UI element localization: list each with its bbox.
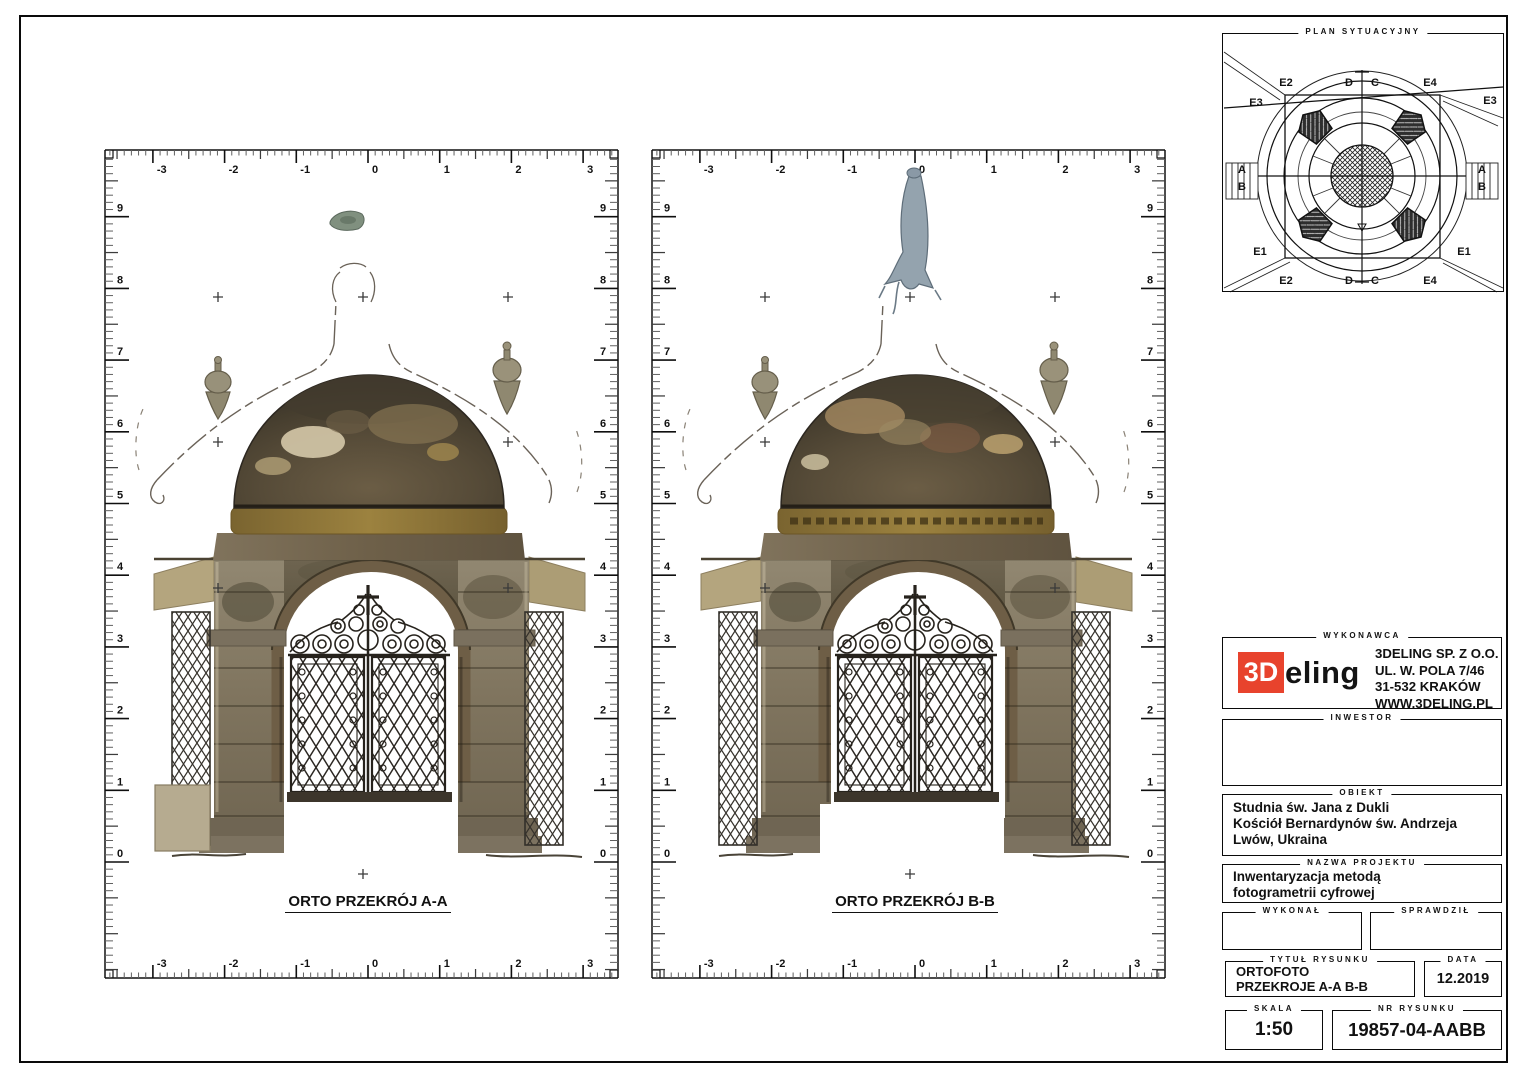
svg-text:1: 1 — [444, 164, 450, 176]
svg-text:3: 3 — [1147, 633, 1153, 645]
svg-text:3: 3 — [664, 633, 670, 645]
svg-text:1: 1 — [600, 776, 606, 788]
svg-text:-3: -3 — [704, 164, 714, 176]
object-text: Studnia św. Jana z Dukli Kościół Bernard… — [1223, 795, 1501, 848]
situational-plan-label: PLAN SYTUACYJNY — [1298, 27, 1427, 36]
svg-text:7: 7 — [600, 346, 606, 358]
svg-text:4: 4 — [664, 561, 671, 573]
svg-text:8: 8 — [1147, 274, 1153, 286]
svg-text:4: 4 — [600, 561, 607, 573]
scale-label: SKALA — [1247, 1004, 1301, 1013]
drawing-number-label: NR RYSUNKU — [1371, 1004, 1463, 1013]
svg-text:-2: -2 — [776, 958, 786, 970]
svg-text:9: 9 — [117, 203, 123, 215]
svg-text:0: 0 — [664, 848, 670, 860]
stone-plinth-left — [155, 785, 210, 851]
svg-text:-1: -1 — [847, 958, 857, 970]
drawing-title-box: TYTUŁ RYSUNKU ORTOFOTO PRZEKROJE A-A B-B — [1225, 961, 1415, 997]
svg-text:5: 5 — [1147, 490, 1153, 502]
orthophoto-section-b — [683, 168, 1132, 879]
date-label: DATA — [1440, 955, 1485, 964]
svg-text:-2: -2 — [229, 958, 239, 970]
project-name-label: NAZWA PROJEKTU — [1300, 858, 1424, 867]
svg-text:7: 7 — [117, 346, 123, 358]
svg-text:3: 3 — [587, 958, 593, 970]
svg-text:2: 2 — [515, 164, 521, 176]
svg-text:6: 6 — [664, 418, 670, 430]
svg-text:8: 8 — [600, 274, 606, 286]
project-name-text: Inwentaryzacja metodą fotogrametrii cyfr… — [1223, 865, 1501, 901]
svg-text:4: 4 — [1147, 561, 1154, 573]
svg-text:5: 5 — [600, 490, 606, 502]
svg-text:5: 5 — [117, 490, 123, 502]
object-label: OBIEKT — [1332, 788, 1391, 797]
svg-text:-2: -2 — [229, 164, 239, 176]
investor-box: INWESTOR — [1222, 719, 1502, 786]
svg-text:-1: -1 — [847, 164, 857, 176]
svg-text:1: 1 — [991, 958, 997, 970]
svg-text:2: 2 — [1147, 705, 1153, 717]
svg-text:5: 5 — [664, 490, 670, 502]
svg-text:1: 1 — [1147, 776, 1153, 788]
svg-text:1: 1 — [117, 776, 123, 788]
object-box: OBIEKT Studnia św. Jana z Dukli Kościół … — [1222, 794, 1502, 856]
situational-plan-box: PLAN SYTUACYJNY — [1222, 33, 1504, 292]
svg-text:7: 7 — [664, 346, 670, 358]
svg-text:3: 3 — [117, 633, 123, 645]
svg-text:0: 0 — [372, 958, 378, 970]
svg-text:-3: -3 — [157, 164, 167, 176]
lantern-outline — [333, 263, 375, 302]
svg-text:-3: -3 — [704, 958, 714, 970]
svg-text:3: 3 — [1134, 958, 1140, 970]
orthophoto-section-a — [136, 211, 585, 879]
checked-by-label: SPRAWDZIŁ — [1394, 906, 1478, 915]
logo-3d-icon: 3D — [1238, 652, 1284, 693]
svg-text:1: 1 — [444, 958, 450, 970]
scale-box: SKALA 1:50 — [1225, 1010, 1323, 1050]
missing-data-cutout-a — [284, 803, 458, 855]
svg-text:3: 3 — [587, 164, 593, 176]
svg-text:2: 2 — [1062, 958, 1068, 970]
svg-text:0: 0 — [372, 164, 378, 176]
svg-text:6: 6 — [117, 418, 123, 430]
drawing-sheet: -3-3-2-2-1-10011223300112233445566778899… — [0, 0, 1527, 1080]
drawn-by-label: WYKONAŁ — [1256, 906, 1329, 915]
svg-text:8: 8 — [117, 274, 123, 286]
caption-section-a: ORTO PRZEKRÓJ A-A — [218, 893, 518, 910]
drawn-by-box: WYKONAŁ — [1222, 912, 1362, 950]
missing-data-cutout-b — [820, 804, 1004, 855]
caption-section-b: ORTO PRZEKRÓJ B-B — [765, 893, 1065, 910]
svg-text:-1: -1 — [300, 958, 310, 970]
svg-text:6: 6 — [1147, 418, 1153, 430]
drawing-number-box: NR RYSUNKU 19857-04-AABB — [1332, 1010, 1502, 1050]
company-logo: 3D eling — [1238, 652, 1360, 693]
svg-text:0: 0 — [919, 958, 925, 970]
date-value: 12.2019 — [1425, 962, 1501, 996]
svg-text:-3: -3 — [157, 958, 167, 970]
date-box: DATA 12.2019 — [1424, 961, 1502, 997]
svg-text:9: 9 — [600, 203, 606, 215]
svg-text:9: 9 — [664, 203, 670, 215]
scale-value: 1:50 — [1226, 1011, 1322, 1049]
svg-text:-1: -1 — [300, 164, 310, 176]
checked-by-box: SPRAWDZIŁ — [1370, 912, 1502, 950]
investor-label: INWESTOR — [1324, 713, 1401, 722]
project-name-box: NAZWA PROJEKTU Inwentaryzacja metodą fot… — [1222, 864, 1502, 903]
svg-text:2: 2 — [1062, 164, 1068, 176]
contractor-label: WYKONAWCA — [1316, 631, 1408, 640]
drawing-title-label: TYTUŁ RYSUNKU — [1263, 955, 1377, 964]
contractor-box: WYKONAWCA 3D eling 3DELING SP. Z O.O. UL… — [1222, 637, 1502, 709]
svg-text:8: 8 — [664, 274, 670, 286]
svg-text:2: 2 — [600, 705, 606, 717]
svg-text:2: 2 — [515, 958, 521, 970]
svg-text:6: 6 — [600, 418, 606, 430]
svg-text:2: 2 — [664, 705, 670, 717]
svg-text:4: 4 — [117, 561, 124, 573]
roof-fragment-green — [330, 211, 364, 230]
company-address: 3DELING SP. Z O.O. UL. W. POLA 7/46 31-5… — [1375, 646, 1499, 712]
svg-text:7: 7 — [1147, 346, 1153, 358]
svg-text:1: 1 — [664, 776, 670, 788]
svg-text:0: 0 — [117, 848, 123, 860]
svg-text:2: 2 — [117, 705, 123, 717]
drawing-title-text: ORTOFOTO PRZEKROJE A-A B-B — [1226, 962, 1414, 994]
svg-text:3: 3 — [1134, 164, 1140, 176]
svg-text:9: 9 — [1147, 203, 1153, 215]
svg-text:0: 0 — [1147, 848, 1153, 860]
drawing-number-value: 19857-04-AABB — [1333, 1011, 1501, 1049]
svg-text:1: 1 — [991, 164, 997, 176]
svg-text:3: 3 — [600, 633, 606, 645]
svg-text:-2: -2 — [776, 164, 786, 176]
svg-text:0: 0 — [600, 848, 606, 860]
